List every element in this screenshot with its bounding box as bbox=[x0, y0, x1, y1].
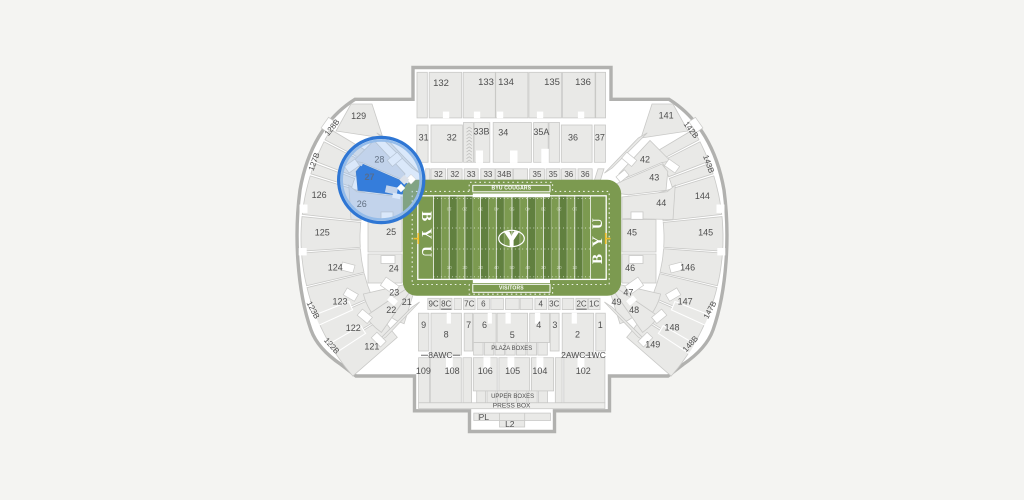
svg-text:21: 21 bbox=[402, 297, 412, 307]
svg-text:34: 34 bbox=[498, 128, 508, 138]
svg-text:30: 30 bbox=[541, 265, 547, 270]
svg-text:33B: 33B bbox=[473, 127, 489, 137]
svg-text:104: 104 bbox=[532, 366, 547, 376]
svg-text:9: 9 bbox=[421, 320, 426, 330]
svg-text:35: 35 bbox=[533, 170, 542, 179]
svg-text:UPPER BOXES: UPPER BOXES bbox=[491, 394, 534, 400]
svg-text:30: 30 bbox=[478, 265, 484, 270]
svg-text:50: 50 bbox=[509, 265, 515, 270]
svg-text:32: 32 bbox=[450, 170, 459, 179]
svg-text:37: 37 bbox=[595, 133, 605, 143]
svg-text:BYU: BYU bbox=[590, 211, 606, 264]
svg-text:36: 36 bbox=[581, 170, 590, 179]
svg-text:44: 44 bbox=[656, 198, 666, 208]
svg-text:31: 31 bbox=[419, 133, 429, 143]
svg-text:1C: 1C bbox=[589, 300, 599, 309]
svg-text:BYU: BYU bbox=[418, 211, 434, 264]
svg-text:102: 102 bbox=[576, 366, 591, 376]
svg-text:122: 122 bbox=[346, 323, 361, 333]
svg-text:49: 49 bbox=[611, 297, 621, 307]
svg-text:50: 50 bbox=[509, 207, 515, 212]
svg-text:36: 36 bbox=[564, 170, 573, 179]
svg-text:35: 35 bbox=[549, 170, 558, 179]
svg-text:4: 4 bbox=[536, 320, 541, 330]
svg-text:7C: 7C bbox=[464, 300, 474, 309]
svg-text:129: 129 bbox=[351, 111, 366, 121]
svg-text:46: 46 bbox=[625, 263, 635, 273]
svg-text:106: 106 bbox=[478, 366, 493, 376]
svg-text:108: 108 bbox=[445, 366, 460, 376]
svg-text:32: 32 bbox=[434, 170, 443, 179]
svg-text:134: 134 bbox=[498, 77, 514, 88]
svg-text:126: 126 bbox=[312, 190, 327, 200]
svg-text:33: 33 bbox=[467, 170, 476, 179]
svg-text:20: 20 bbox=[462, 265, 468, 270]
svg-text:32: 32 bbox=[447, 133, 457, 143]
svg-text:PL: PL bbox=[479, 412, 490, 422]
svg-text:BYU COUGARS: BYU COUGARS bbox=[492, 186, 532, 192]
svg-text:146: 146 bbox=[680, 263, 695, 273]
svg-text:10: 10 bbox=[572, 207, 578, 212]
svg-text:10: 10 bbox=[572, 265, 578, 270]
svg-text:132: 132 bbox=[433, 78, 449, 89]
svg-text:43: 43 bbox=[649, 172, 659, 182]
svg-text:47: 47 bbox=[623, 288, 633, 298]
svg-text:10: 10 bbox=[446, 207, 452, 212]
svg-text:8C: 8C bbox=[441, 300, 451, 309]
svg-text:PRESS BOX: PRESS BOX bbox=[493, 402, 531, 409]
svg-text:40: 40 bbox=[494, 265, 500, 270]
svg-text:48: 48 bbox=[629, 305, 639, 315]
svg-text:2: 2 bbox=[575, 330, 580, 340]
svg-text:1: 1 bbox=[598, 320, 603, 330]
svg-text:2C: 2C bbox=[576, 300, 586, 309]
svg-text:36: 36 bbox=[568, 133, 578, 143]
svg-text:23: 23 bbox=[389, 287, 399, 297]
svg-text:3C: 3C bbox=[549, 300, 559, 309]
svg-text:8: 8 bbox=[444, 330, 449, 340]
svg-text:33: 33 bbox=[483, 170, 492, 179]
svg-text:7: 7 bbox=[466, 320, 471, 330]
svg-text:125: 125 bbox=[315, 228, 330, 238]
svg-text:147: 147 bbox=[678, 297, 693, 307]
svg-text:6: 6 bbox=[481, 300, 486, 309]
svg-text:121: 121 bbox=[364, 342, 379, 352]
svg-text:30: 30 bbox=[540, 207, 546, 212]
svg-text:20: 20 bbox=[557, 265, 563, 270]
svg-text:1WC: 1WC bbox=[587, 350, 606, 360]
svg-text:9C: 9C bbox=[428, 300, 438, 309]
svg-text:124: 124 bbox=[328, 263, 343, 273]
svg-text:10: 10 bbox=[447, 265, 453, 270]
svg-text:141: 141 bbox=[659, 111, 674, 121]
svg-text:40: 40 bbox=[525, 207, 531, 212]
svg-text:144: 144 bbox=[695, 191, 710, 201]
svg-text:40: 40 bbox=[525, 265, 531, 270]
svg-text:133: 133 bbox=[478, 77, 494, 88]
svg-text:123: 123 bbox=[332, 297, 347, 307]
svg-text:VISITORS: VISITORS bbox=[499, 285, 524, 291]
svg-text:4: 4 bbox=[538, 300, 543, 309]
svg-text:34B: 34B bbox=[497, 170, 511, 179]
svg-text:149: 149 bbox=[645, 340, 660, 350]
svg-text:35A: 35A bbox=[533, 127, 549, 137]
svg-text:105: 105 bbox=[505, 366, 520, 376]
svg-text:148: 148 bbox=[664, 323, 679, 333]
svg-text:8AWC: 8AWC bbox=[428, 350, 452, 360]
svg-text:PLAZA BOXES: PLAZA BOXES bbox=[491, 346, 532, 352]
svg-text:30: 30 bbox=[478, 207, 484, 212]
svg-text:22: 22 bbox=[386, 305, 396, 315]
svg-text:20: 20 bbox=[556, 207, 562, 212]
svg-text:2AWC: 2AWC bbox=[561, 350, 585, 360]
svg-text:20: 20 bbox=[462, 207, 468, 212]
svg-text:109: 109 bbox=[416, 366, 431, 376]
svg-text:145: 145 bbox=[698, 228, 713, 238]
svg-text:45: 45 bbox=[627, 228, 637, 238]
svg-text:42: 42 bbox=[640, 155, 650, 165]
svg-text:L2: L2 bbox=[505, 419, 515, 429]
svg-text:25: 25 bbox=[386, 227, 396, 237]
svg-text:3: 3 bbox=[552, 320, 557, 330]
svg-text:135: 135 bbox=[544, 77, 560, 88]
svg-text:6: 6 bbox=[482, 320, 487, 330]
svg-text:40: 40 bbox=[493, 207, 499, 212]
svg-text:5: 5 bbox=[510, 330, 515, 340]
svg-text:136: 136 bbox=[575, 77, 591, 88]
svg-text:24: 24 bbox=[389, 263, 399, 273]
